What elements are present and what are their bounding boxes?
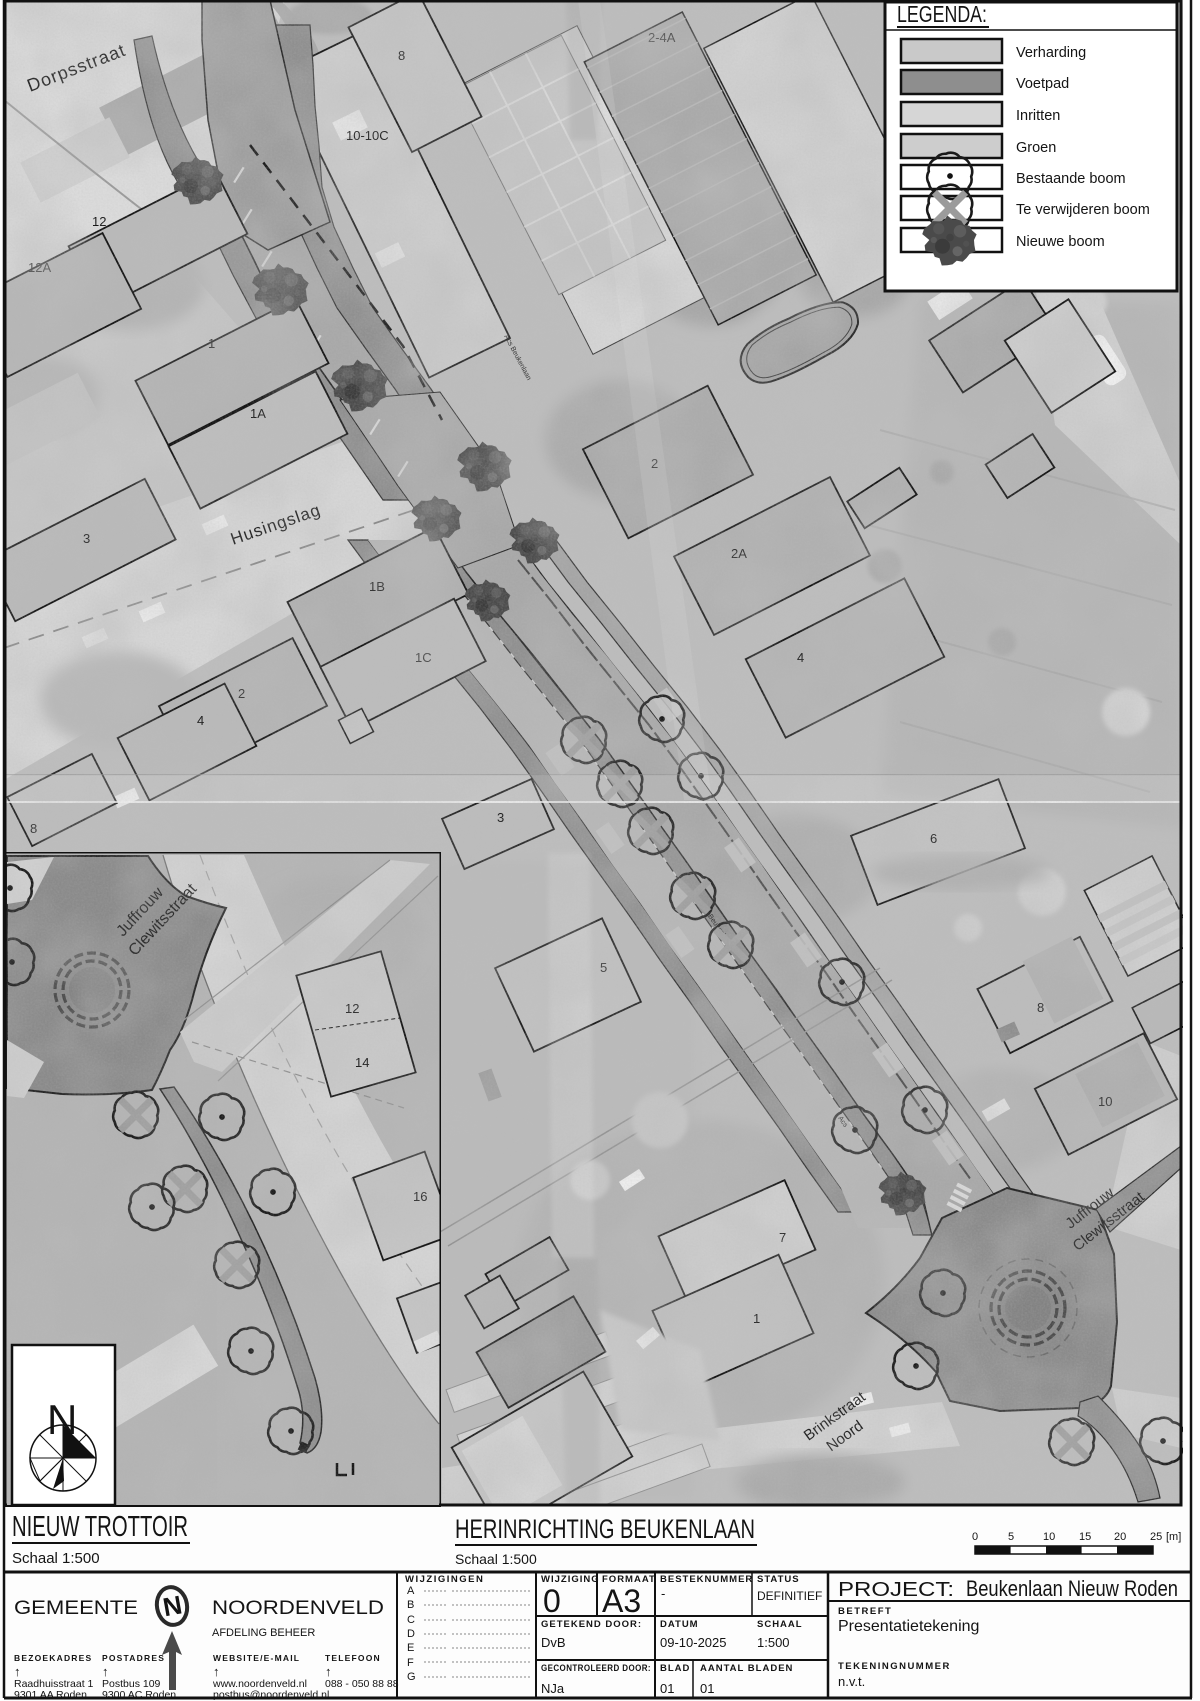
svg-text:WIJZIGINGEN: WIJZIGINGEN bbox=[405, 1574, 484, 1585]
svg-text:088 - 050 88 88: 088 - 050 88 88 bbox=[325, 1678, 399, 1690]
svg-text:09-10-2025: 09-10-2025 bbox=[660, 1635, 727, 1650]
svg-text:DvB: DvB bbox=[541, 1635, 566, 1650]
svg-text:1:500: 1:500 bbox=[757, 1635, 790, 1650]
svg-text:9300 AC Roden: 9300 AC Roden bbox=[102, 1689, 176, 1701]
svg-text:10: 10 bbox=[1043, 1531, 1055, 1543]
svg-text:POSTADRES: POSTADRES bbox=[102, 1653, 165, 1663]
svg-text:Verharding: Verharding bbox=[1016, 45, 1086, 61]
svg-text:Beukenlaan Nieuw Roden: Beukenlaan Nieuw Roden bbox=[966, 1576, 1178, 1601]
svg-text:GETEKEND DOOR:: GETEKEND DOOR: bbox=[541, 1619, 642, 1630]
svg-text:F: F bbox=[407, 1657, 414, 1669]
svg-text:SCHAAL: SCHAAL bbox=[757, 1619, 803, 1630]
svg-text:C: C bbox=[407, 1614, 415, 1626]
svg-text:BLAD: BLAD bbox=[660, 1663, 690, 1674]
svg-text:postbus@noordenveld.nl: postbus@noordenveld.nl bbox=[213, 1689, 329, 1701]
svg-text:Te verwijderen boom: Te verwijderen boom bbox=[1016, 202, 1150, 218]
svg-text:Groen: Groen bbox=[1016, 140, 1056, 156]
svg-text:Inritten: Inritten bbox=[1016, 108, 1060, 124]
svg-text:NIEUW TROTTOIR: NIEUW TROTTOIR bbox=[12, 1511, 188, 1543]
svg-text:D: D bbox=[407, 1628, 415, 1640]
svg-text:BEZOEKADRES: BEZOEKADRES bbox=[14, 1653, 92, 1663]
svg-text:15: 15 bbox=[1079, 1531, 1091, 1543]
svg-text:01: 01 bbox=[700, 1681, 714, 1696]
svg-text:STATUS: STATUS bbox=[757, 1574, 800, 1585]
svg-text:DEFINITIEF: DEFINITIEF bbox=[757, 1589, 822, 1603]
svg-text:↑: ↑ bbox=[213, 1664, 220, 1679]
svg-text:25: 25 bbox=[1150, 1531, 1162, 1543]
svg-text:20: 20 bbox=[1114, 1531, 1126, 1543]
svg-text:↑: ↑ bbox=[14, 1664, 21, 1679]
svg-text:PROJECT:: PROJECT: bbox=[838, 1579, 954, 1601]
svg-text:NJa: NJa bbox=[541, 1681, 565, 1696]
svg-text:5: 5 bbox=[1008, 1531, 1014, 1543]
svg-text:AFDELING BEHEER: AFDELING BEHEER bbox=[212, 1627, 315, 1639]
svg-text:Schaal 1:500: Schaal 1:500 bbox=[12, 1550, 100, 1567]
svg-text:G: G bbox=[407, 1671, 416, 1683]
svg-text:Voetpad: Voetpad bbox=[1016, 76, 1069, 92]
svg-text:[m]: [m] bbox=[1166, 1531, 1181, 1543]
svg-text:A: A bbox=[407, 1585, 415, 1597]
svg-text:TEKENINGNUMMER: TEKENINGNUMMER bbox=[838, 1661, 951, 1672]
svg-text:BETREFT: BETREFT bbox=[838, 1606, 892, 1617]
svg-text:A3: A3 bbox=[602, 1583, 641, 1619]
svg-text:BESTEKNUMMER: BESTEKNUMMER bbox=[660, 1574, 753, 1585]
svg-text:Presentatietekening: Presentatietekening bbox=[838, 1618, 979, 1635]
svg-text:B: B bbox=[407, 1599, 414, 1611]
svg-text:GEMEENTE: GEMEENTE bbox=[14, 1598, 138, 1619]
svg-text:LEGENDA:: LEGENDA: bbox=[897, 1, 987, 27]
svg-text:n.v.t.: n.v.t. bbox=[838, 1674, 865, 1689]
svg-text:↑: ↑ bbox=[325, 1664, 332, 1679]
svg-text:AANTAL BLADEN: AANTAL BLADEN bbox=[700, 1663, 793, 1674]
svg-text:NOORDENVELD: NOORDENVELD bbox=[212, 1598, 384, 1619]
svg-text:Schaal 1:500: Schaal 1:500 bbox=[455, 1551, 537, 1567]
svg-text:↑: ↑ bbox=[102, 1664, 109, 1679]
svg-text:0: 0 bbox=[543, 1583, 561, 1619]
svg-text:GECONTROLEERD DOOR:: GECONTROLEERD DOOR: bbox=[541, 1663, 651, 1674]
svg-text:Bestaande boom: Bestaande boom bbox=[1016, 171, 1126, 187]
svg-text:01: 01 bbox=[660, 1681, 674, 1696]
svg-text:HERINRICHTING BEUKENLAAN: HERINRICHTING BEUKENLAAN bbox=[455, 1514, 755, 1544]
svg-text:E: E bbox=[407, 1642, 414, 1654]
svg-text:WEBSITE/E-MAIL: WEBSITE/E-MAIL bbox=[213, 1653, 300, 1663]
svg-text:-: - bbox=[661, 1586, 665, 1601]
svg-text:TELEFOON: TELEFOON bbox=[325, 1653, 381, 1663]
svg-text:Nieuwe boom: Nieuwe boom bbox=[1016, 234, 1105, 250]
svg-text:9301 AA Roden: 9301 AA Roden bbox=[14, 1689, 87, 1701]
svg-text:0: 0 bbox=[972, 1531, 978, 1543]
svg-text:DATUM: DATUM bbox=[660, 1619, 699, 1630]
